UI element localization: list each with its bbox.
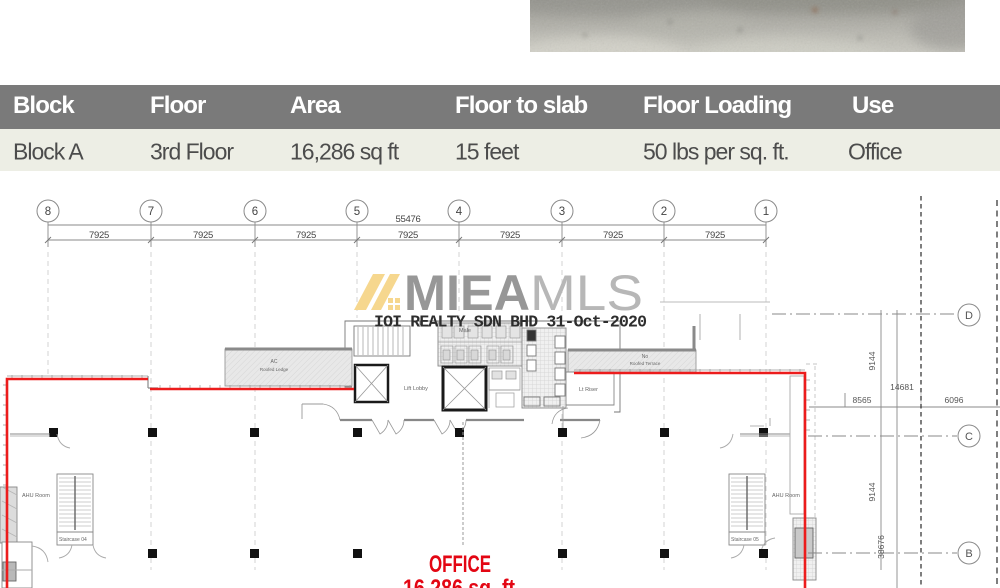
svg-text:Staircase 05: Staircase 05 xyxy=(731,537,759,543)
svg-text:6: 6 xyxy=(252,206,258,218)
svg-text:2: 2 xyxy=(661,206,667,218)
svg-text:C: C xyxy=(965,431,973,443)
svg-text:AHU Room: AHU Room xyxy=(772,493,800,499)
svg-text:8565: 8565 xyxy=(853,395,872,405)
svg-text:7925: 7925 xyxy=(705,230,725,241)
svg-text:6096: 6096 xyxy=(945,395,964,405)
svg-text:Staircase 04: Staircase 04 xyxy=(59,537,87,543)
svg-text:7925: 7925 xyxy=(89,230,109,241)
svg-text:AC: AC xyxy=(271,359,278,365)
svg-text:4: 4 xyxy=(456,206,463,218)
svg-text:AHU Room: AHU Room xyxy=(22,493,50,499)
svg-text:7925: 7925 xyxy=(193,230,213,241)
svg-text:IOI REALTY SDN BHD 31-Oct-2020: IOI REALTY SDN BHD 31-Oct-2020 xyxy=(374,313,647,332)
svg-text:14681: 14681 xyxy=(890,382,914,392)
svg-text:8: 8 xyxy=(45,206,51,218)
svg-text:7925: 7925 xyxy=(603,230,623,241)
svg-text:No: No xyxy=(642,354,649,360)
svg-text:9144: 9144 xyxy=(867,482,877,501)
svg-text:Roofed Terrace: Roofed Terrace xyxy=(630,361,661,366)
svg-text:Lift Lobby: Lift Lobby xyxy=(404,386,428,392)
svg-text:Lt Riser: Lt Riser xyxy=(579,387,598,393)
svg-text:7: 7 xyxy=(148,206,154,218)
svg-text:Roofed Ledge: Roofed Ledge xyxy=(260,367,289,372)
svg-text:16,286 sq. ft: 16,286 sq. ft xyxy=(403,575,515,588)
svg-text:9144: 9144 xyxy=(867,351,877,370)
svg-text:5: 5 xyxy=(354,206,360,218)
svg-text:55476: 55476 xyxy=(396,214,421,225)
svg-text:38676: 38676 xyxy=(876,535,886,559)
svg-text:7925: 7925 xyxy=(500,230,520,241)
svg-text:3: 3 xyxy=(559,206,565,218)
svg-text:7925: 7925 xyxy=(398,230,418,241)
svg-text:1: 1 xyxy=(763,206,769,218)
svg-text:D: D xyxy=(965,310,973,322)
svg-text:OFFICE: OFFICE xyxy=(429,551,491,578)
svg-text:7925: 7925 xyxy=(296,230,316,241)
svg-text:B: B xyxy=(965,548,972,560)
